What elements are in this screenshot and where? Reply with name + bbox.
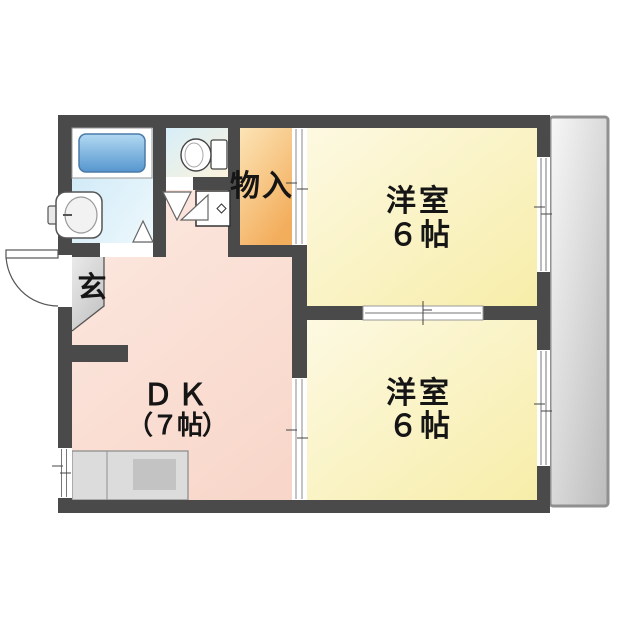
toilet-icon xyxy=(181,139,227,171)
wall xyxy=(153,115,166,257)
label-room-top-size: ６帖 xyxy=(388,219,452,252)
floor-plan: 物入 玄 洋室 ６帖 洋室 ６帖 ＤＫ （７帖） xyxy=(0,0,636,640)
label-room-bottom-name: 洋室 xyxy=(386,376,452,410)
wall xyxy=(537,272,550,350)
label-room-bottom-size: ６帖 xyxy=(388,410,452,443)
wall xyxy=(193,177,228,190)
label-room-top-name: 洋室 xyxy=(386,184,452,218)
wall xyxy=(292,306,365,320)
window-kitchen xyxy=(52,448,72,498)
label-storage: 物入 xyxy=(230,170,294,203)
kitchen-counter xyxy=(72,451,188,500)
label-entrance: 玄 xyxy=(77,270,106,304)
entrance-door-opening xyxy=(58,255,72,307)
kitchen-sink xyxy=(133,459,176,490)
wall xyxy=(58,345,128,362)
wall xyxy=(58,307,72,448)
wall xyxy=(58,496,72,513)
floorplan-page: 物入 玄 洋室 ６帖 洋室 ６帖 ＤＫ （７帖） xyxy=(0,0,636,640)
wall xyxy=(58,243,100,257)
bathroom-door-opening xyxy=(100,243,153,257)
balcony xyxy=(550,117,608,506)
wall xyxy=(58,500,549,513)
toilet-door-opening xyxy=(166,177,193,190)
entrance-door-icon xyxy=(6,250,58,306)
wall xyxy=(58,115,549,128)
wall xyxy=(537,466,550,513)
wall xyxy=(537,115,550,157)
bathtub-icon xyxy=(72,128,152,178)
wall xyxy=(483,306,537,320)
label-dk-name: ＤＫ xyxy=(143,379,211,412)
label-dk-size: （７帖） xyxy=(127,410,227,440)
wash-basin-icon xyxy=(48,192,102,238)
